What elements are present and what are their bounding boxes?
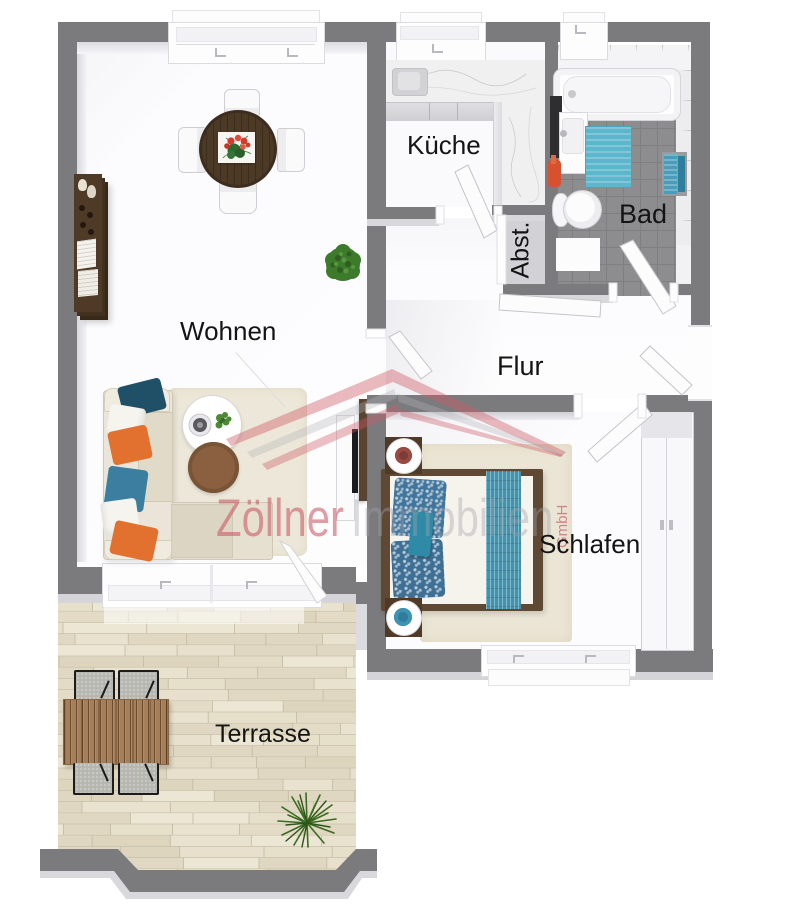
svg-text:Immobilien: Immobilien: [351, 489, 553, 548]
svg-text:Zöllner: Zöllner: [216, 489, 344, 548]
